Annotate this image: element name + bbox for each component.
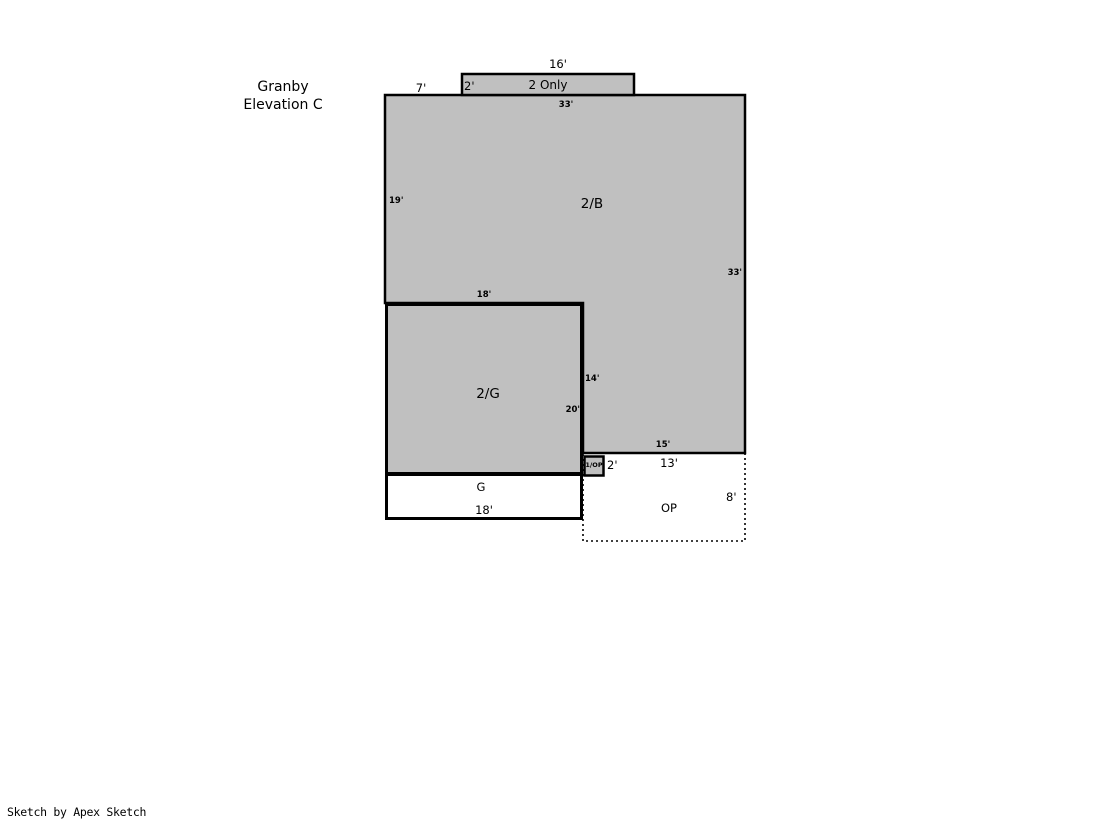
area-label-op: OP [649, 501, 689, 515]
area-label-2b: 2/B [557, 196, 627, 212]
sketch-page: Granby Elevation C 16' 7' 2' 2 Only 33' … [0, 0, 1119, 821]
dim-main-top: 33' [546, 100, 586, 110]
dim-inner-wall-right: 14' [585, 374, 599, 384]
sketch-title-line1: Granby [230, 78, 336, 96]
dim-porch-top: 13' [649, 456, 689, 470]
sketch-title: Granby Elevation C [230, 78, 336, 114]
footer-credit: Sketch by Apex Sketch [7, 806, 146, 819]
dim-main-left: 19' [389, 196, 403, 206]
dim-inner-wall-left: 20' [540, 405, 580, 415]
dim-porch-right: 8' [726, 490, 736, 504]
dim-main-right: 33' [702, 268, 742, 278]
dim-main-bottom: 15' [643, 440, 683, 450]
dim-garage-width: 18' [464, 503, 504, 517]
sketch-title-line2: Elevation C [230, 96, 336, 114]
area-label-2only: 2 Only [461, 78, 635, 92]
area-label-g: G [461, 480, 501, 494]
dim-inner-top: 18' [464, 290, 504, 300]
dim-left-offset: 7' [401, 81, 441, 95]
area-label-2g: 2/G [453, 386, 523, 402]
dim-top-box-width: 16' [538, 57, 578, 71]
area-label-1op: 1/OP [583, 461, 605, 469]
dim-porch-step: 2' [607, 458, 617, 472]
